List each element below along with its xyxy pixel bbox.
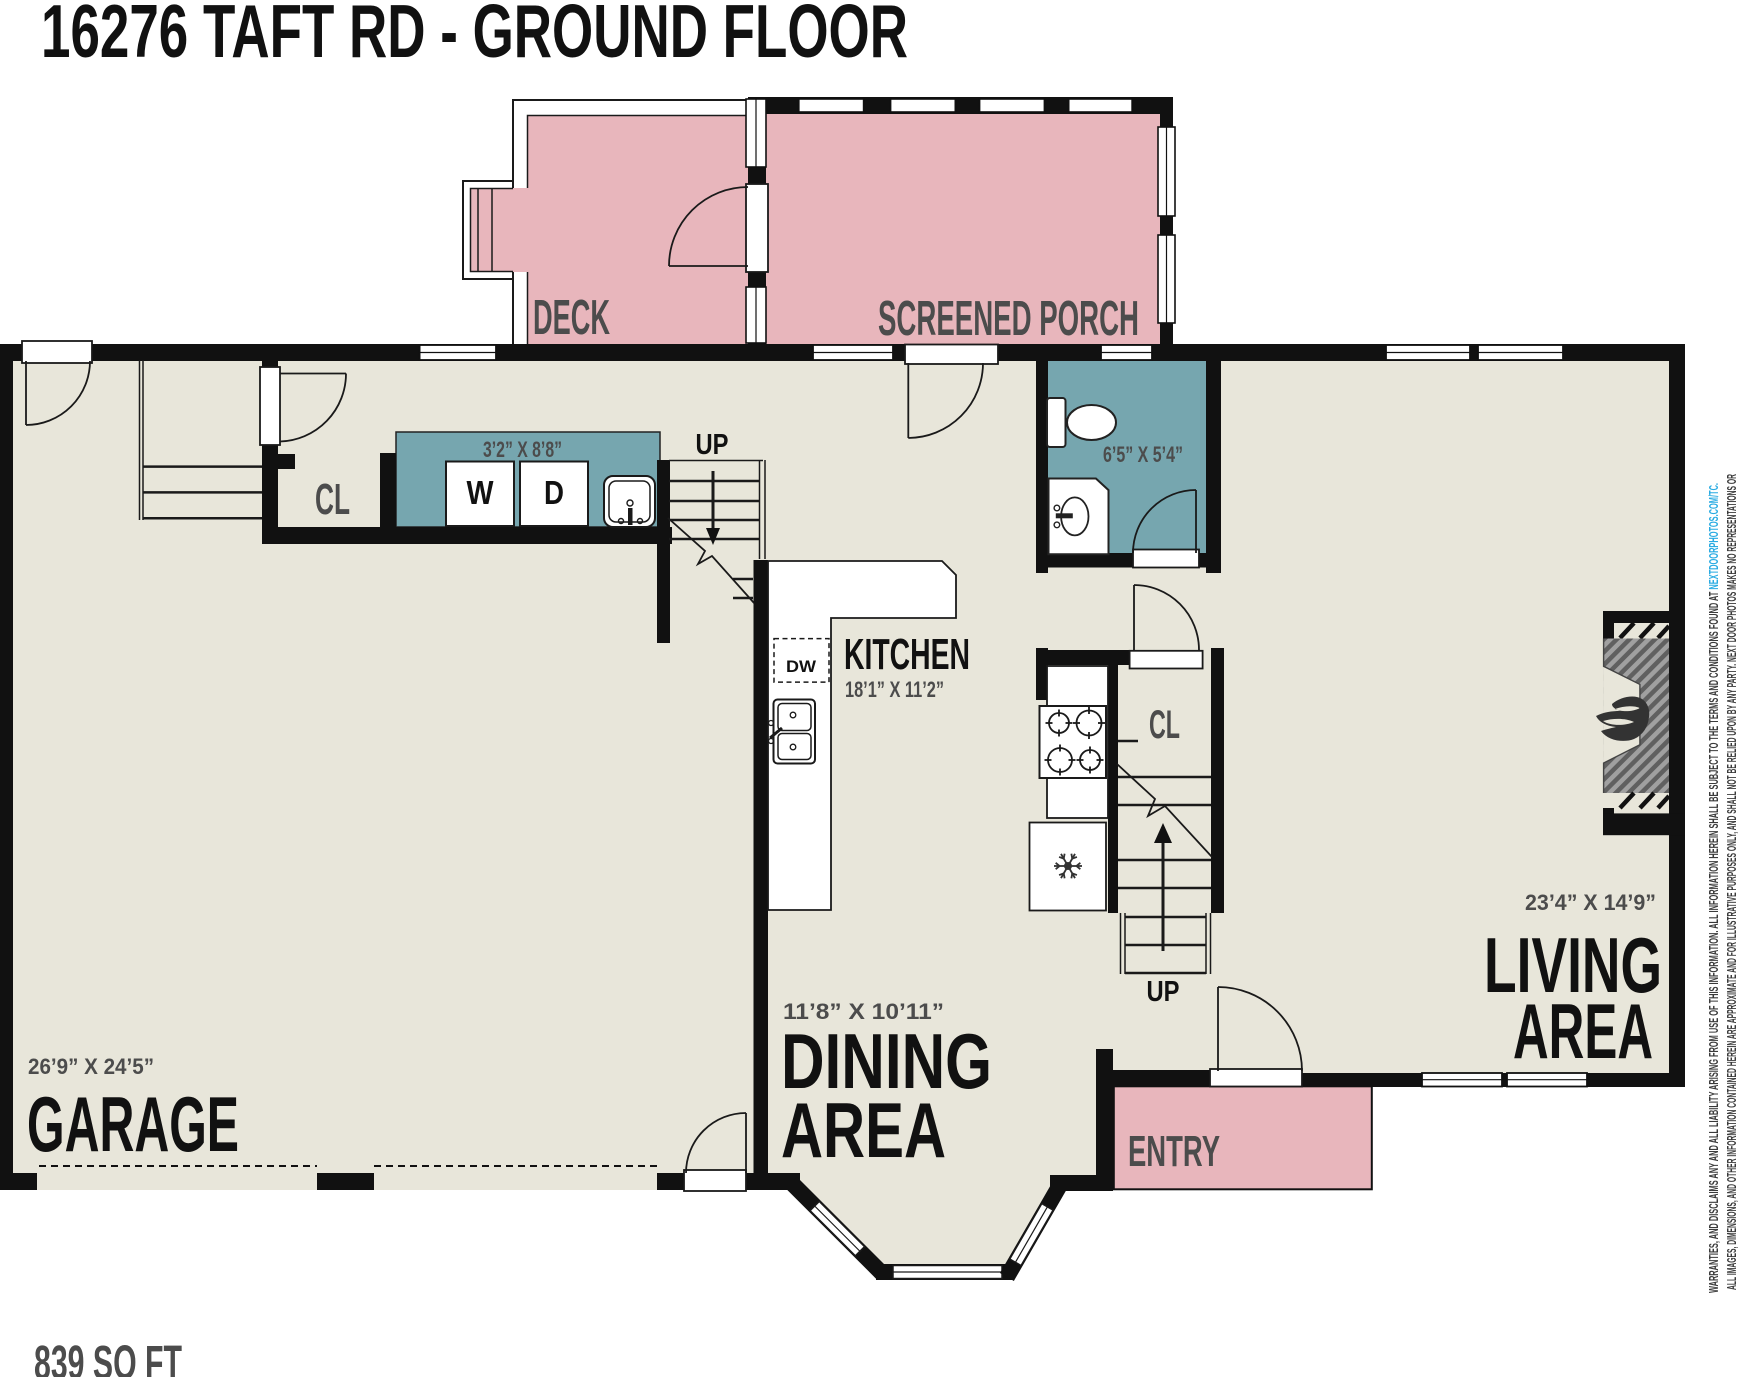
- svg-text:CL: CL: [315, 475, 350, 524]
- svg-text:3’2” X 8’8”: 3’2” X 8’8”: [483, 437, 562, 462]
- svg-text:6’5” X 5’4”: 6’5” X 5’4”: [1103, 442, 1183, 467]
- svg-text:18’1” X 11’2”: 18’1” X 11’2”: [845, 677, 944, 702]
- svg-text:KITCHEN: KITCHEN: [844, 630, 970, 679]
- svg-text:AREA: AREA: [781, 1086, 946, 1174]
- svg-text:DECK: DECK: [533, 291, 610, 345]
- svg-text:DW: DW: [786, 657, 817, 676]
- svg-text:UP: UP: [1147, 976, 1180, 1008]
- svg-text:11’8” X 10’11”: 11’8” X 10’11”: [783, 999, 944, 1024]
- svg-text:CL: CL: [1149, 703, 1180, 747]
- svg-text:D: D: [544, 474, 564, 511]
- svg-text:GARAGE: GARAGE: [27, 1080, 239, 1168]
- svg-text:W: W: [467, 474, 495, 511]
- svg-text:23’4” X 14’9”: 23’4” X 14’9”: [1525, 890, 1656, 915]
- svg-text:AREA: AREA: [1513, 987, 1653, 1075]
- svg-text:ALL IMAGES, DIMENSIONS, AND OT: ALL IMAGES, DIMENSIONS, AND OTHER INFORM…: [1724, 474, 1739, 1290]
- svg-text:UP: UP: [696, 429, 729, 461]
- svg-text:SCREENED PORCH: SCREENED PORCH: [878, 292, 1139, 346]
- svg-text:ENTRY: ENTRY: [1128, 1127, 1220, 1176]
- svg-text:839 SQ FT: 839 SQ FT: [34, 1337, 182, 1377]
- svg-text:26’9” X 24’5”: 26’9” X 24’5”: [28, 1054, 154, 1079]
- svg-text:WARRANTIES, AND DISCLAIMS ANY: WARRANTIES, AND DISCLAIMS ANY AND ALL LI…: [1706, 483, 1721, 1293]
- svg-text:16276 TAFT RD - GROUND FLOOR: 16276 TAFT RD - GROUND FLOOR: [41, 0, 908, 73]
